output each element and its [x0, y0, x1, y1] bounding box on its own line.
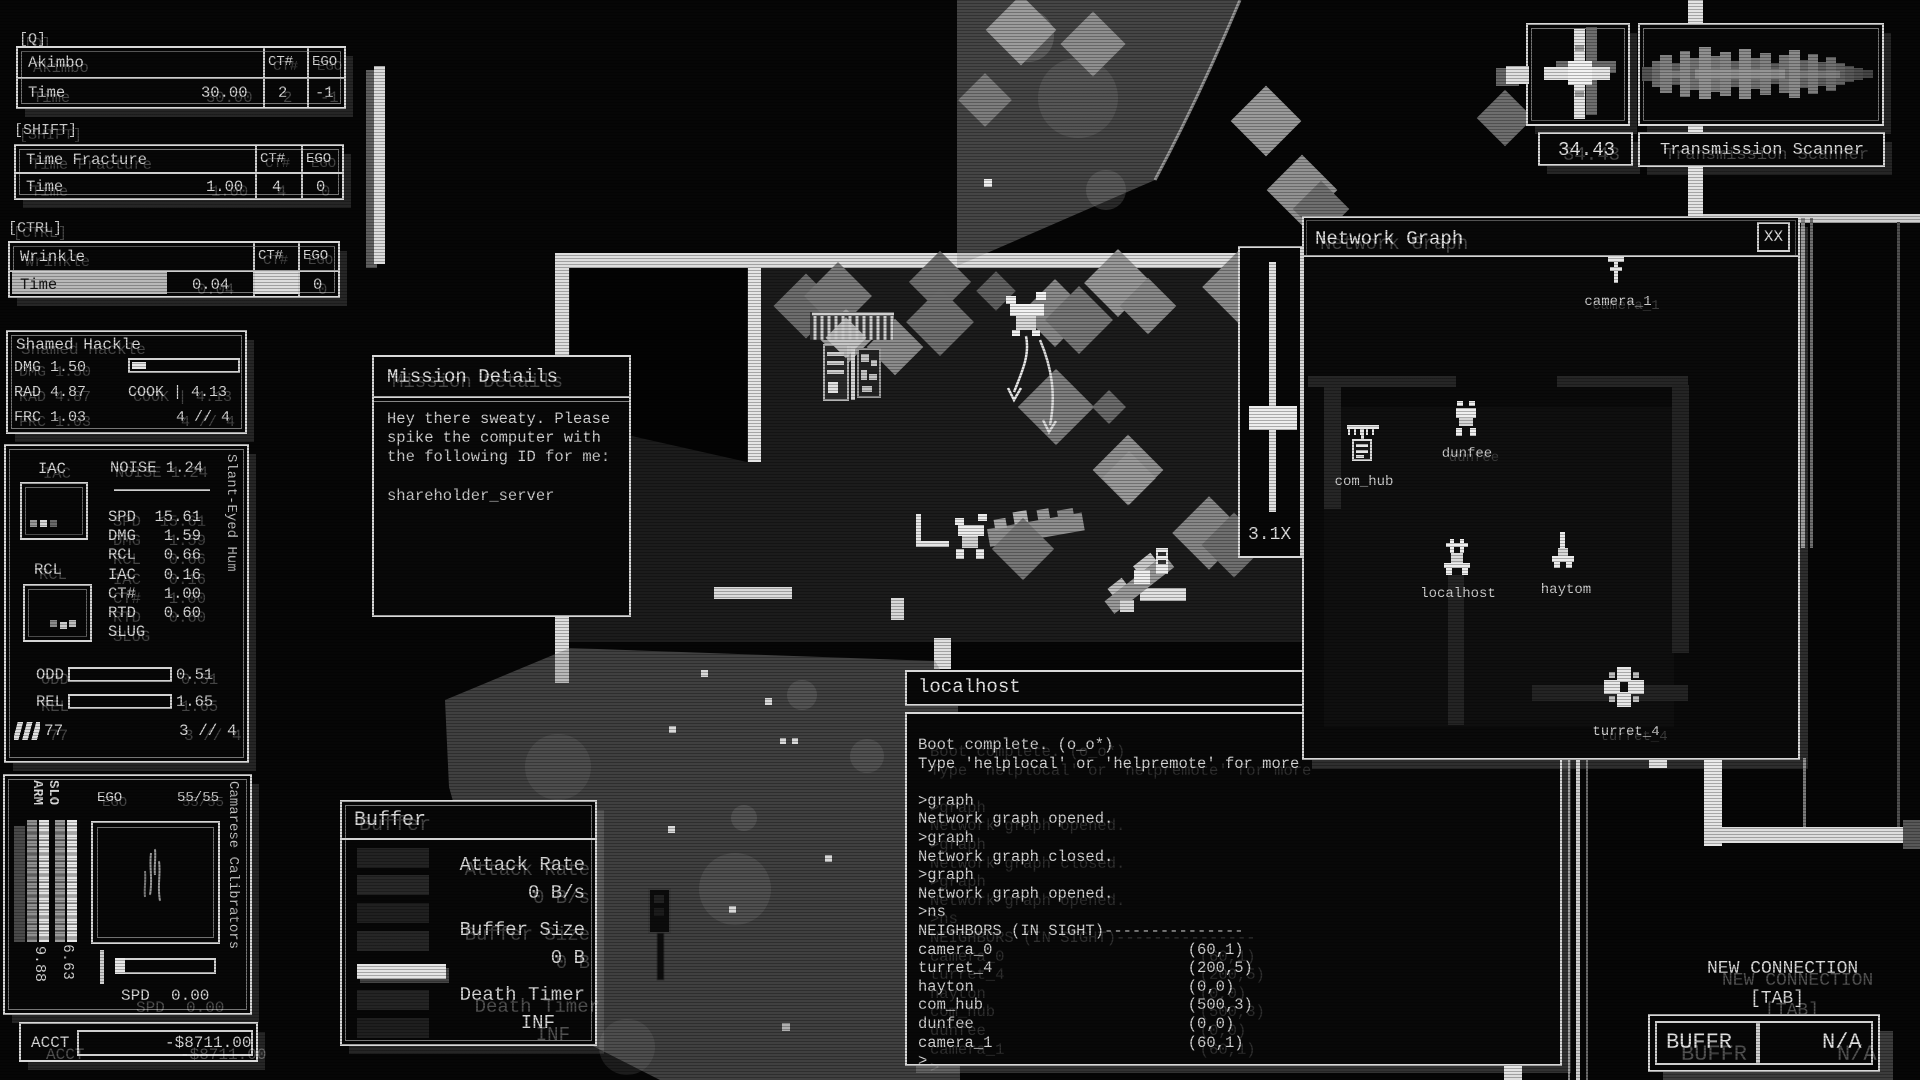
svg-text:localhost: localhost: [1420, 586, 1496, 602]
svg-text:turret_4: turret_4: [1592, 724, 1659, 740]
svg-text:camera_1: camera_1: [1584, 294, 1651, 310]
svg-text:haytom: haytom: [1541, 582, 1591, 598]
svg-text:com_hub: com_hub: [1335, 474, 1394, 490]
svg-text:dunfee: dunfee: [1442, 446, 1492, 462]
